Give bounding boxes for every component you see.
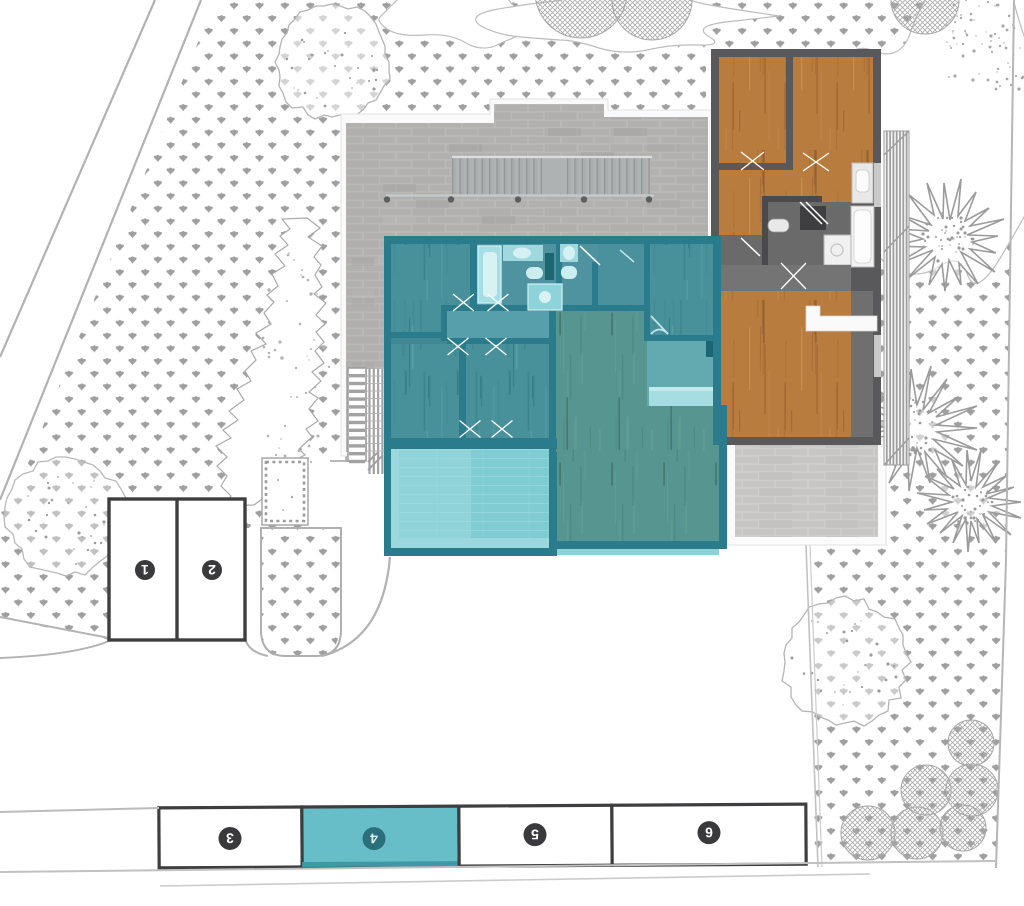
svg-text:3: 3	[226, 830, 234, 846]
svg-text:2: 2	[208, 562, 216, 578]
svg-text:1: 1	[141, 562, 149, 578]
svg-text:5: 5	[531, 827, 539, 843]
svg-text:6: 6	[705, 825, 713, 841]
svg-text:4: 4	[370, 831, 378, 847]
